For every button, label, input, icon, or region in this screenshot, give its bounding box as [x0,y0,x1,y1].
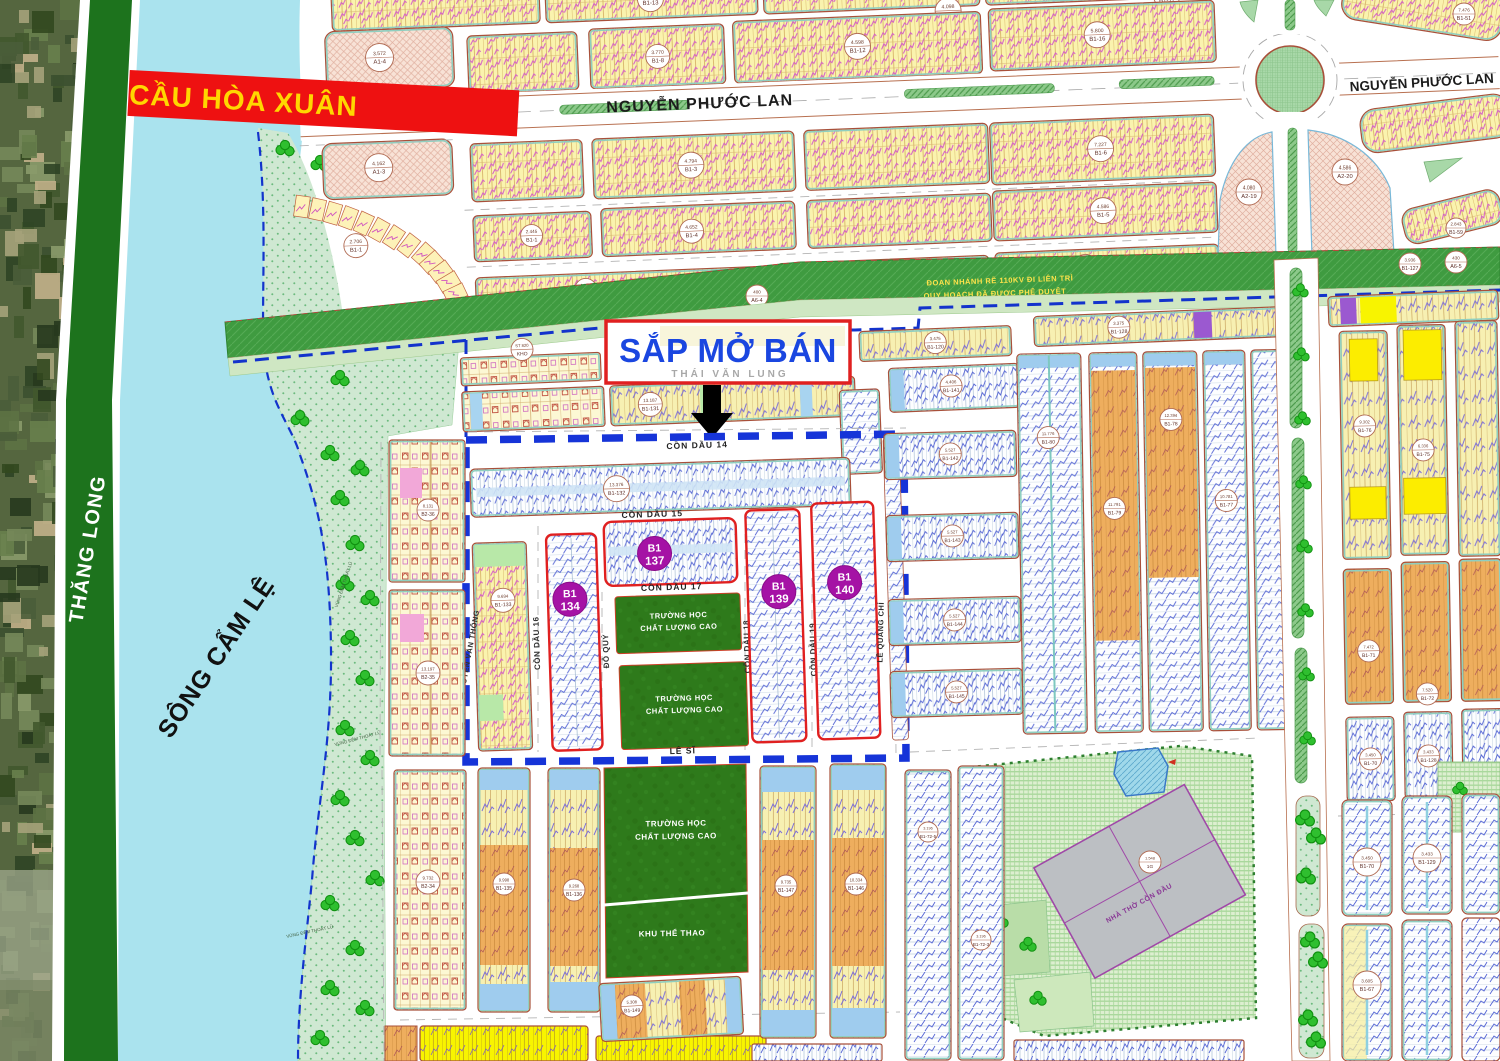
svg-text:3.375: 3.375 [1113,320,1125,325]
svg-text:B1-77: B1-77 [1220,502,1234,508]
svg-text:KHO: KHO [517,351,528,357]
svg-text:3.475: 3.475 [930,336,942,341]
svg-text:9.694: 9.694 [497,594,509,599]
svg-text:B1-72-5: B1-72-5 [920,834,937,839]
svg-text:13.197: 13.197 [421,667,435,672]
svg-text:134: 134 [560,601,580,614]
svg-text:TRƯỜNG HỌC: TRƯỜNG HỌC [650,610,708,621]
svg-text:A6-4: A6-4 [751,298,762,304]
svg-text:B1-149: B1-149 [624,1008,641,1015]
svg-text:B1-135: B1-135 [496,886,512,892]
svg-text:5.308: 5.308 [626,999,637,1005]
svg-text:7.227: 7.227 [1094,142,1107,149]
svg-text:TRƯỜNG HỌC: TRƯỜNG HỌC [655,693,713,704]
svg-text:B1-142: B1-142 [942,456,958,462]
svg-text:9.998: 9.998 [499,878,510,883]
svg-text:7.520: 7.520 [1422,687,1433,692]
svg-text:B1-13: B1-13 [642,0,659,7]
svg-text:A2-19: A2-19 [1241,194,1256,200]
svg-text:140: 140 [835,584,855,597]
svg-text:B1-147: B1-147 [778,888,794,894]
svg-text:3.433: 3.433 [1423,749,1434,754]
svg-text:B1-71: B1-71 [1362,653,1376,659]
svg-text:1G: 1G [1147,864,1154,870]
svg-text:B1-78: B1-78 [1164,421,1178,427]
svg-text:10.334: 10.334 [850,878,863,883]
svg-text:B1-128: B1-128 [1111,329,1128,336]
svg-text:5.800: 5.800 [1090,28,1103,35]
svg-text:3.936: 3.936 [1405,258,1417,263]
svg-text:A1-3: A1-3 [372,169,386,176]
svg-text:B1-128: B1-128 [1420,758,1436,764]
svg-text:B1-72-3: B1-72-3 [973,942,990,947]
svg-text:B1-133: B1-133 [495,602,512,609]
svg-text:B1-1: B1-1 [350,247,362,253]
svg-text:A1-4: A1-4 [373,59,387,66]
svg-text:4.406: 4.406 [945,379,957,384]
svg-text:B1-59: B1-59 [1449,230,1463,236]
svg-text:2.843: 2.843 [1451,222,1463,227]
svg-text:139: 139 [769,593,789,606]
svg-text:B2-34: B2-34 [421,884,435,890]
svg-text:B1-146: B1-146 [848,886,864,892]
svg-text:6.336: 6.336 [1418,443,1429,448]
svg-text:3.450: 3.450 [1365,752,1376,757]
svg-text:5.527: 5.527 [945,447,956,452]
svg-text:ĐỖ QUÝ: ĐỖ QUÝ [601,634,611,669]
svg-text:11.791: 11.791 [1108,502,1121,507]
svg-text:ST 820: ST 820 [515,343,529,349]
svg-text:B1-143: B1-143 [944,538,960,544]
svg-text:A2-20: A2-20 [1337,174,1352,180]
svg-text:B1-70: B1-70 [1360,864,1374,870]
svg-text:B1-75: B1-75 [1416,452,1430,458]
svg-text:B1-145: B1-145 [948,694,964,700]
svg-text:4.098: 4.098 [941,4,954,11]
svg-text:B1-80: B1-80 [1042,439,1056,445]
svg-text:4.598: 4.598 [851,40,864,47]
svg-text:11.776: 11.776 [1042,431,1055,436]
svg-text:B1-129: B1-129 [1418,860,1435,866]
svg-text:CỒN DẦU 16: CỒN DẦU 16 [530,616,542,670]
svg-text:4.080: 4.080 [1243,186,1256,192]
svg-text:B1-131: B1-131 [642,406,660,413]
svg-text:B1-79: B1-79 [1108,510,1122,516]
svg-text:4.162: 4.162 [372,161,385,168]
svg-text:B1: B1 [837,571,851,583]
svg-text:B1-132: B1-132 [608,490,626,497]
svg-text:TRƯỜNG HỌC: TRƯỜNG HỌC [645,818,706,828]
svg-text:9.732: 9.732 [423,876,435,881]
svg-text:4.652: 4.652 [685,224,698,231]
svg-text:B1-70: B1-70 [1364,761,1378,767]
svg-text:B2-36: B2-36 [421,512,435,518]
svg-text:B1-3: B1-3 [685,167,697,173]
svg-text:10.781: 10.781 [1220,494,1234,499]
svg-text:B1-120: B1-120 [927,344,944,351]
svg-text:137: 137 [645,555,665,568]
svg-text:B1-5: B1-5 [1097,212,1109,218]
svg-text:B1-1: B1-1 [526,237,538,243]
svg-text:430: 430 [1452,256,1460,261]
svg-text:THÁI VĂN LUNG: THÁI VĂN LUNG [671,367,788,380]
svg-text:B2-35: B2-35 [421,675,435,681]
svg-text:B1-4: B1-4 [686,233,699,240]
svg-text:B1-127: B1-127 [1402,266,1419,272]
svg-text:B1-12: B1-12 [850,48,867,55]
svg-text:CỒN DẦU 14: CỒN DẦU 14 [666,438,728,451]
svg-text:B1: B1 [563,588,577,600]
svg-text:9.735: 9.735 [781,880,792,885]
svg-text:LÊ QUẢNG CHÍ: LÊ QUẢNG CHÍ [876,602,886,663]
svg-text:5.527: 5.527 [947,529,958,534]
svg-text:CỒN DẦU 15: CỒN DẦU 15 [621,507,683,520]
svg-text:4.586: 4.586 [1097,204,1110,211]
svg-text:400: 400 [753,290,761,295]
svg-text:B1-76: B1-76 [1358,428,1372,434]
svg-text:4.794: 4.794 [684,158,697,165]
svg-text:9.268: 9.268 [569,884,580,889]
svg-text:12.394: 12.394 [1164,413,1178,418]
svg-text:LÊ SĨ: LÊ SĨ [669,744,696,756]
svg-text:3.770: 3.770 [651,50,664,57]
svg-text:B1: B1 [772,580,786,592]
svg-text:B1-8: B1-8 [652,58,664,64]
svg-text:8.131: 8.131 [423,504,434,509]
svg-text:KHU THỂ THAO: KHU THỂ THAO [639,928,706,938]
svg-text:1.548: 1.548 [1145,856,1156,861]
svg-text:3.572: 3.572 [373,51,386,58]
svg-text:7.472: 7.472 [1363,644,1374,649]
svg-text:4.586: 4.586 [1339,166,1352,172]
svg-text:3.605: 3.605 [1361,979,1373,984]
svg-text:13.187: 13.187 [643,398,658,404]
svg-text:B1-141: B1-141 [943,388,960,395]
svg-text:7.476: 7.476 [1458,8,1470,13]
svg-text:CHẤT LƯỢNG CAO: CHẤT LƯỢNG CAO [635,830,717,841]
svg-text:13.376: 13.376 [609,482,624,487]
svg-text:B1-51: B1-51 [1457,16,1471,22]
svg-text:B1-67: B1-67 [1360,987,1374,993]
svg-text:5.527: 5.527 [951,685,962,690]
svg-text:2.706: 2.706 [349,239,362,246]
svg-text:A6-5: A6-5 [1450,264,1461,270]
svg-text:5.527: 5.527 [949,613,960,618]
svg-text:B1-144: B1-144 [947,622,963,628]
svg-text:3.433: 3.433 [1421,852,1433,857]
svg-text:2.445: 2.445 [526,229,538,234]
svg-text:B1: B1 [647,542,661,554]
svg-text:3.450: 3.450 [1361,856,1373,861]
svg-text:SẮP MỞ BÁN: SẮP MỞ BÁN [619,332,837,369]
svg-text:B1-136: B1-136 [566,892,582,898]
svg-text:B1-16: B1-16 [1089,36,1106,43]
svg-text:B1-6: B1-6 [1095,150,1107,156]
svg-text:CỒN DẦU 17: CỒN DẦU 17 [641,580,703,593]
svg-text:3.196: 3.196 [976,935,986,939]
svg-text:9.302: 9.302 [1359,419,1370,424]
svg-text:B1-72: B1-72 [1421,696,1435,702]
svg-text:3.196: 3.196 [923,827,933,831]
